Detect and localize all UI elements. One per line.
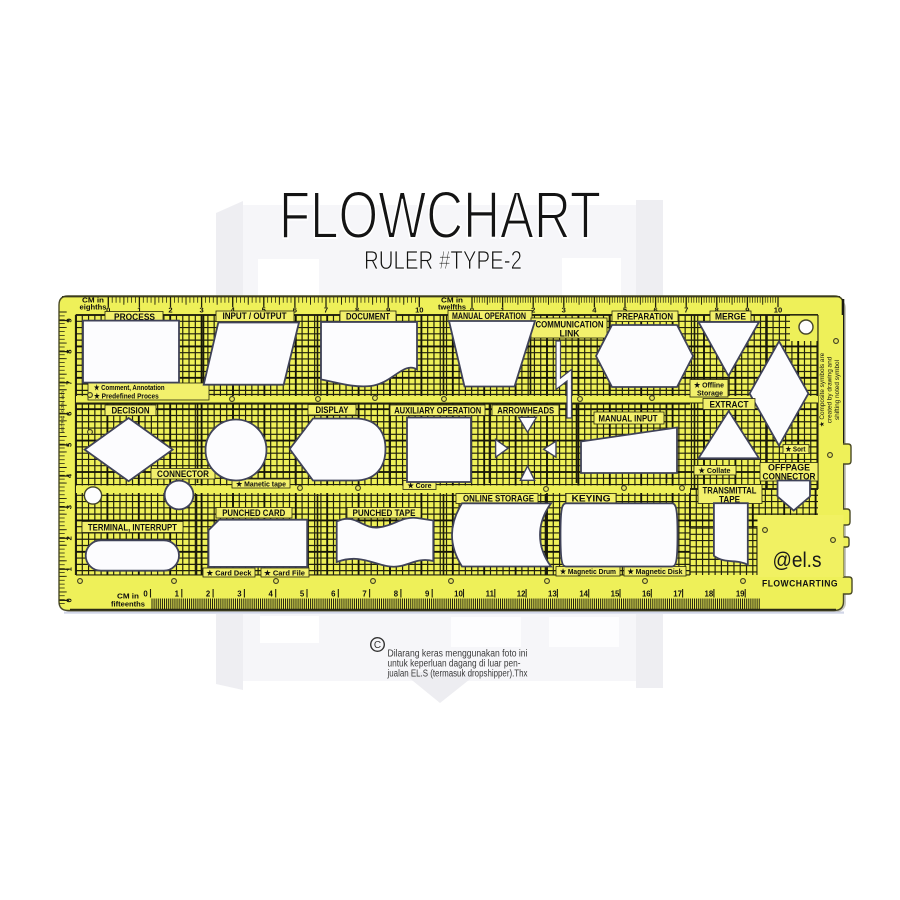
svg-text:6: 6 [331,590,336,599]
svg-text:ARROWHEADS: ARROWHEADS [497,406,554,416]
svg-text:19: 19 [736,590,745,599]
svg-text:created by drawing and: created by drawing and [827,356,834,423]
svg-text:MANUAL OPERATION: MANUAL OPERATION [452,311,526,321]
svg-text:INPUT / OUTPUT: INPUT / OUTPUT [223,311,287,321]
svg-text:PUNCHED CARD: PUNCHED CARD [222,508,285,518]
svg-text:DOCUMENT: DOCUMENT [346,312,390,322]
svg-text:6: 6 [65,412,74,416]
svg-text:MERGE: MERGE [715,312,746,322]
svg-text:3: 3 [65,505,74,509]
svg-text:★ Card File: ★ Card File [263,569,305,578]
svg-text:0: 0 [143,590,148,599]
svg-text:10: 10 [415,306,423,315]
svg-text:eighths: eighths [80,302,107,311]
svg-text:★ Sort: ★ Sort [785,445,806,454]
svg-text:7: 7 [324,306,328,315]
svg-text:3: 3 [237,590,242,599]
svg-text:★ Magnetic Disk: ★ Magnetic Disk [627,567,684,576]
svg-text:TERMINAL, INTERRUPT: TERMINAL, INTERRUPT [88,523,177,533]
svg-text:AUXILIARY OPERATION: AUXILIARY OPERATION [394,406,481,416]
svg-text:CONNECTOR: CONNECTOR [157,469,209,479]
svg-text:PREPARATION: PREPARATION [617,312,673,322]
svg-text:★ Predefined Proces: ★ Predefined Proces [94,392,159,401]
svg-text:FLOWCHART: FLOWCHART [279,178,601,253]
svg-text:C: C [374,640,381,651]
svg-text:MANUAL INPUT: MANUAL INPUT [599,414,658,424]
svg-text:KEYING: KEYING [572,494,611,504]
svg-text:fifteenths: fifteenths [111,600,145,609]
svg-text:7: 7 [65,381,74,385]
svg-text:2: 2 [168,306,172,315]
svg-text:jualan EL.S (termasuk dropship: jualan EL.S (termasuk dropshipper).Thx [387,669,528,680]
svg-text:16: 16 [642,590,651,599]
svg-text:10: 10 [454,590,463,599]
svg-text:10: 10 [774,306,782,315]
svg-text:2: 2 [206,590,211,599]
svg-text:★ Composite symbols are: ★ Composite symbols are [819,352,826,427]
svg-text:LINK: LINK [560,329,580,339]
svg-text:twelfths: twelfths [438,302,466,311]
svg-text:12: 12 [517,590,526,599]
svg-text:ONLINE STORAGE: ONLINE STORAGE [463,494,534,504]
svg-text:★ Card Deck: ★ Card Deck [206,569,253,578]
svg-text:@el.s: @el.s [773,549,822,572]
svg-text:11: 11 [486,590,495,599]
svg-text:METRIC +0.394 inch: METRIC +0.394 inch [60,391,65,433]
svg-text:★ Magnetic Drum: ★ Magnetic Drum [559,567,616,576]
svg-text:EXTRACT: EXTRACT [710,400,749,410]
svg-text:13: 13 [548,590,557,599]
svg-text:8: 8 [394,590,399,599]
svg-text:18: 18 [705,590,714,599]
svg-text:9: 9 [65,318,74,322]
svg-text:14: 14 [579,590,588,599]
svg-text:RULER #TYPE-2: RULER #TYPE-2 [364,245,522,275]
svg-text:0: 0 [65,598,74,602]
svg-text:4: 4 [269,590,274,599]
svg-text:1: 1 [175,590,180,599]
svg-text:7: 7 [684,306,688,315]
svg-text:PUNCHED TAPE: PUNCHED TAPE [353,508,416,518]
svg-text:7: 7 [362,590,366,599]
svg-text:15: 15 [611,590,620,599]
svg-text:★ Manetic tape: ★ Manetic tape [235,480,286,489]
svg-text:9: 9 [425,590,430,599]
svg-text:DISPLAY: DISPLAY [316,405,349,415]
svg-text:FLOWCHARTING: FLOWCHARTING [762,578,838,589]
svg-text:3: 3 [199,306,203,315]
svg-text:17: 17 [673,590,682,599]
svg-text:shifting noted symbol: shifting noted symbol [834,360,841,420]
svg-text:DECISION: DECISION [112,406,150,416]
svg-text:Storage: Storage [697,389,723,398]
svg-text:5: 5 [300,590,305,599]
svg-text:2: 2 [65,536,74,540]
svg-text:★ Collate: ★ Collate [698,466,731,475]
svg-text:3: 3 [562,306,566,315]
svg-text:8: 8 [65,349,74,353]
